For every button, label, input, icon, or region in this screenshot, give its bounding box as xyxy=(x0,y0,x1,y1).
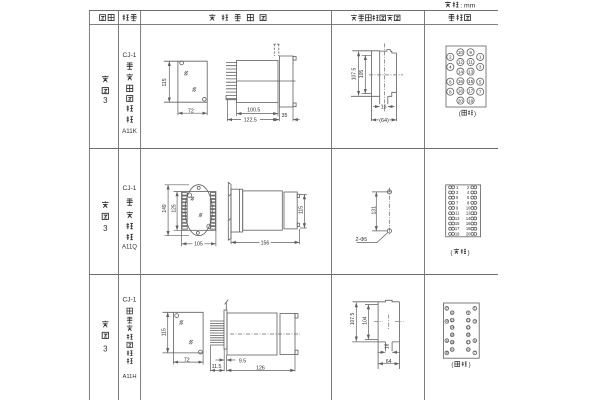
svg-text:16: 16 xyxy=(458,79,464,84)
svg-text:3: 3 xyxy=(103,96,107,105)
svg-text:5: 5 xyxy=(474,339,476,343)
svg-text:CJ-1: CJ-1 xyxy=(123,296,137,303)
svg-text:6: 6 xyxy=(446,339,448,343)
svg-text:7: 7 xyxy=(479,89,482,94)
svg-text:10: 10 xyxy=(458,50,464,55)
svg-text:115: 115 xyxy=(162,78,168,86)
svg-text:125: 125 xyxy=(171,204,177,213)
svg-text:107.5: 107.5 xyxy=(351,68,357,81)
svg-text:2: 2 xyxy=(446,307,448,311)
svg-text:105: 105 xyxy=(194,242,203,248)
svg-text:18: 18 xyxy=(450,340,454,344)
svg-text:A11K: A11K xyxy=(122,128,138,135)
svg-text:15: 15 xyxy=(466,333,470,337)
svg-text:72: 72 xyxy=(188,108,194,114)
svg-text:5: 5 xyxy=(479,79,482,84)
svg-text:4: 4 xyxy=(449,65,452,70)
svg-text:131: 131 xyxy=(371,206,377,215)
svg-text:14: 14 xyxy=(450,326,454,330)
svg-text:17: 17 xyxy=(466,340,470,344)
svg-text:3: 3 xyxy=(479,65,482,70)
svg-text:122.5: 122.5 xyxy=(244,118,257,124)
svg-text:13: 13 xyxy=(466,326,470,330)
svg-text:20: 20 xyxy=(450,348,454,352)
svg-text:8: 8 xyxy=(449,89,452,94)
svg-text:): ) xyxy=(468,249,470,256)
svg-text:6: 6 xyxy=(449,79,452,84)
svg-text:16: 16 xyxy=(381,104,387,110)
svg-text:1: 1 xyxy=(474,307,476,311)
svg-text:3: 3 xyxy=(103,224,107,233)
svg-text:12: 12 xyxy=(458,60,464,65)
svg-text:11.5: 11.5 xyxy=(212,364,222,370)
svg-text:12: 12 xyxy=(450,318,454,322)
svg-text:9: 9 xyxy=(469,50,472,55)
svg-text:126: 126 xyxy=(256,366,265,372)
svg-text:19: 19 xyxy=(468,98,474,103)
svg-text:16: 16 xyxy=(450,333,454,337)
svg-text:11: 11 xyxy=(468,60,473,65)
svg-text:(: ( xyxy=(451,363,453,369)
svg-text:9: 9 xyxy=(467,311,469,315)
svg-text:CJ-1: CJ-1 xyxy=(123,185,137,192)
svg-text:100.5: 100.5 xyxy=(247,108,260,114)
svg-text:4: 4 xyxy=(446,320,448,324)
svg-text:3: 3 xyxy=(103,344,107,353)
svg-text:105: 105 xyxy=(359,70,365,79)
svg-text:156: 156 xyxy=(261,240,270,246)
svg-text:20: 20 xyxy=(466,231,471,236)
svg-text:16: 16 xyxy=(385,343,391,349)
svg-text:35: 35 xyxy=(282,113,288,119)
svg-text:9.5: 9.5 xyxy=(239,358,246,364)
svg-text:107.5: 107.5 xyxy=(350,313,356,326)
svg-text:CJ-1: CJ-1 xyxy=(123,52,137,59)
svg-text:10: 10 xyxy=(450,311,454,315)
svg-text:A11H: A11H xyxy=(122,374,136,380)
svg-text:15: 15 xyxy=(468,79,474,84)
svg-text:): ) xyxy=(469,363,471,369)
svg-text:20: 20 xyxy=(458,98,464,103)
svg-text:14: 14 xyxy=(458,69,464,74)
svg-text:104: 104 xyxy=(362,316,368,325)
svg-text:17: 17 xyxy=(468,89,474,94)
svg-text:(64): (64) xyxy=(379,118,389,124)
svg-text:1: 1 xyxy=(479,55,482,60)
svg-text:): ) xyxy=(474,111,476,117)
svg-text:A11Q: A11Q xyxy=(122,245,137,251)
svg-text:7: 7 xyxy=(474,351,476,355)
svg-text:2-Φ5: 2-Φ5 xyxy=(355,237,367,243)
svg-text:3: 3 xyxy=(474,320,476,324)
svg-text:: mm: : mm xyxy=(460,3,475,10)
svg-text:2: 2 xyxy=(449,55,452,60)
svg-text:19: 19 xyxy=(466,348,470,352)
svg-text:13: 13 xyxy=(468,69,474,74)
svg-text:115: 115 xyxy=(298,206,304,214)
svg-text:115: 115 xyxy=(162,328,168,336)
svg-text:19: 19 xyxy=(455,231,460,236)
svg-text:18: 18 xyxy=(458,89,464,94)
svg-text:149: 149 xyxy=(162,204,168,213)
svg-text:72: 72 xyxy=(184,357,190,363)
svg-text:64: 64 xyxy=(386,359,392,365)
svg-text:11: 11 xyxy=(467,318,471,322)
svg-text:(: ( xyxy=(459,111,461,117)
svg-text:8: 8 xyxy=(446,351,448,355)
